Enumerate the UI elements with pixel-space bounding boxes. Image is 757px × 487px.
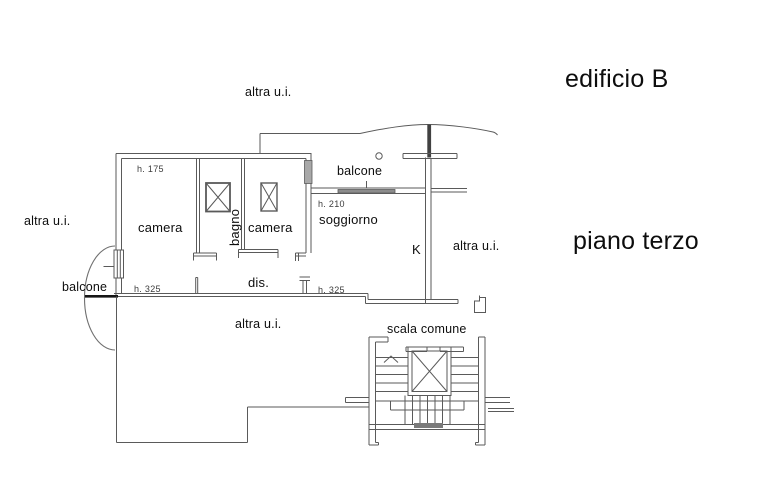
label-height-soggiorno: h. 210 bbox=[318, 200, 345, 210]
pillar-column bbox=[475, 296, 486, 313]
camera-window bbox=[305, 161, 313, 184]
label-altra-ui-right: altra u.i. bbox=[453, 240, 499, 254]
label-kitchen: K bbox=[412, 243, 421, 257]
label-scala-comune: scala comune bbox=[387, 323, 467, 337]
label-balcone-top: balcone bbox=[337, 165, 382, 179]
floor-title: piano terzo bbox=[573, 228, 699, 256]
stair-treads-right bbox=[451, 358, 479, 392]
label-height-camera: h. 175 bbox=[137, 165, 164, 175]
label-balcone-left: balcone bbox=[62, 281, 107, 295]
label-height-dis-right: h. 325 bbox=[318, 286, 345, 296]
elevator-shaft bbox=[408, 347, 451, 396]
label-altra-ui-bottom: altra u.i. bbox=[235, 318, 281, 332]
stair-direction-arrow bbox=[384, 356, 398, 363]
label-soggiorno: soggiorno bbox=[319, 213, 378, 227]
stair-treads-left bbox=[376, 358, 409, 392]
building-title: edificio B bbox=[565, 66, 668, 94]
label-camera-right: camera bbox=[248, 221, 293, 235]
balcony-column bbox=[376, 153, 382, 159]
section-wall-mark bbox=[427, 125, 431, 158]
label-dis: dis. bbox=[248, 276, 269, 290]
lower-unit-boundary bbox=[117, 296, 486, 443]
soggiorno-balcony-window bbox=[338, 190, 395, 194]
label-camera-left: camera bbox=[138, 221, 183, 235]
label-height-dis-left: h. 325 bbox=[134, 285, 161, 295]
left-balcony bbox=[84, 246, 118, 350]
floor-plan-page: altra u.i. altra u.i. altra u.i. altra u… bbox=[0, 0, 757, 487]
staircase bbox=[346, 337, 515, 445]
label-altra-ui-left: altra u.i. bbox=[24, 215, 70, 229]
balcony-arc bbox=[84, 246, 115, 350]
label-altra-ui-top: altra u.i. bbox=[245, 86, 291, 100]
balcony-door-window bbox=[114, 250, 124, 278]
stair-door-threshold bbox=[414, 423, 443, 428]
label-bagno: bagno bbox=[228, 209, 242, 246]
